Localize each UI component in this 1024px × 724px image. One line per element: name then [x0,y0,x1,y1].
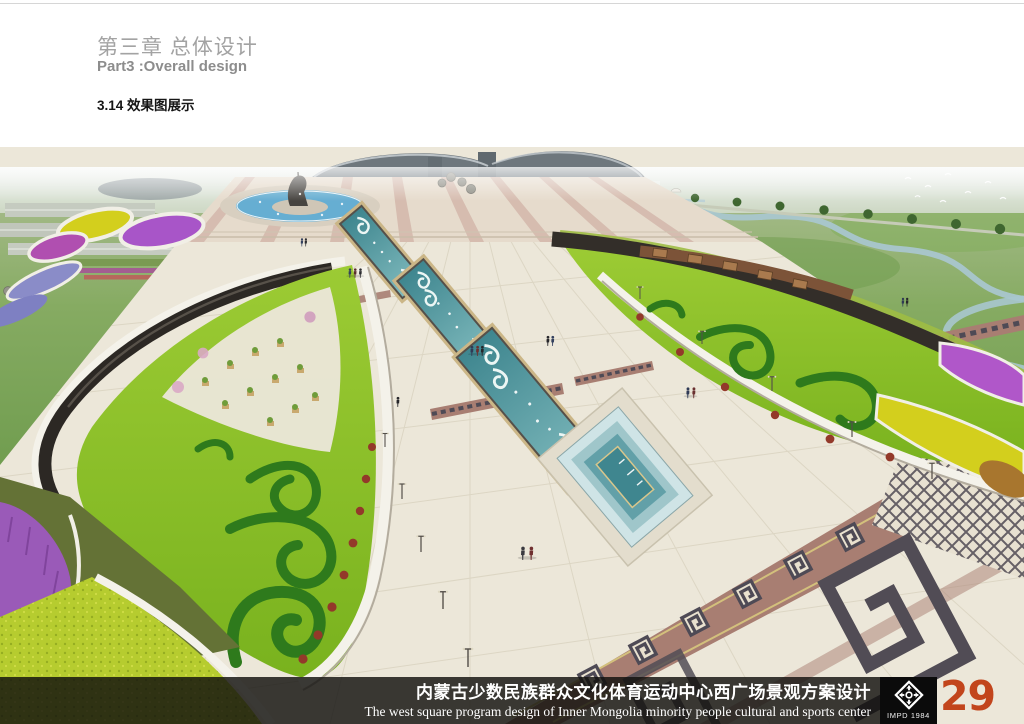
section-title: 3.14 效果图展示 [97,94,195,114]
project-title-zh: 内蒙古少数民族群众文化体育运动中心西广场景观方案设计 [365,683,871,703]
chapter-title-zh: 第三章 总体设计 [97,31,258,61]
page-number: 29 [940,676,995,717]
impd-logo-icon [894,680,924,710]
horizon-haze [0,167,1024,201]
impd-logo-caption: IMPD 1984 [887,711,930,720]
rendering-image: 内蒙古少数民族群众文化体育运动中心西广场景观方案设计 The west squa… [0,147,1024,724]
top-divider [0,3,1024,4]
impd-logo: IMPD 1984 [880,677,937,724]
west-square-scene [0,147,1024,724]
project-title-en: The west square program design of Inner … [365,704,871,719]
chapter-title-en: Part3 :Overall design [97,58,247,75]
footer-bar: 内蒙古少数民族群众文化体育运动中心西广场景观方案设计 The west squa… [0,677,937,724]
footer-titles: 内蒙古少数民族群众文化体育运动中心西广场景观方案设计 The west squa… [365,683,871,719]
presentation-page: 第三章 总体设计 Part3 :Overall design 3.14 效果图展… [0,0,1024,724]
